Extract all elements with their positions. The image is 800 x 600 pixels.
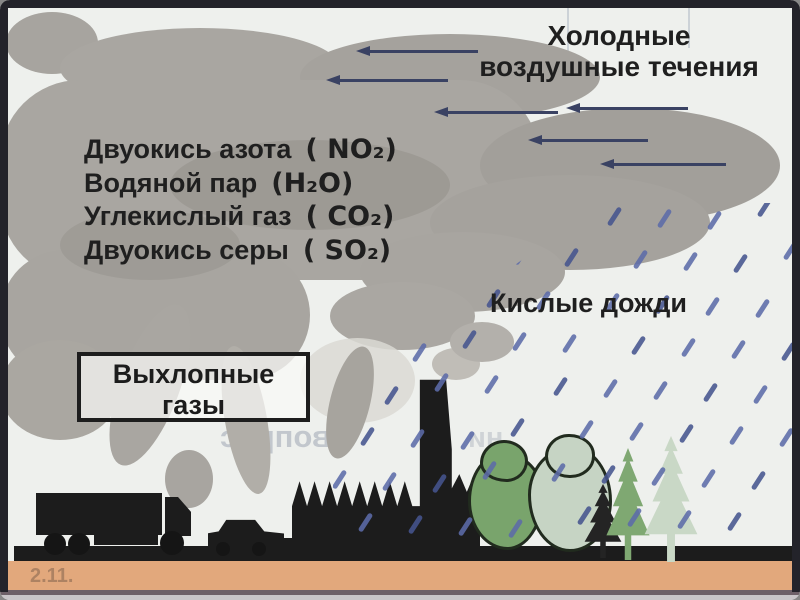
rain-dash xyxy=(657,208,673,228)
bottom-gray-strip xyxy=(0,595,800,600)
acid-rain-diagram: копи вопрос ни Холодные воздушные течени… xyxy=(0,0,800,600)
pollutant-name: Углекислый газ xyxy=(84,201,292,232)
rain-dash xyxy=(653,380,669,400)
rain-dash xyxy=(701,468,717,488)
cold-current-arrow xyxy=(336,79,448,82)
rain-dash xyxy=(601,464,617,484)
rain-dash xyxy=(360,426,376,446)
rain-dash xyxy=(631,335,647,355)
cold-current-arrow xyxy=(576,107,688,110)
rain-dash xyxy=(358,512,374,532)
bleed-text-bottom: 2.11. xyxy=(30,565,73,588)
cold-currents-line1: Холодные xyxy=(464,20,774,51)
rain-dash xyxy=(707,210,723,230)
rain-dash xyxy=(462,329,478,349)
rain-dash xyxy=(733,253,749,273)
rain-dash xyxy=(579,419,595,439)
rain-dash xyxy=(607,206,623,226)
pollutant-formula: ( SO₂) xyxy=(303,235,391,266)
rain-dash xyxy=(382,471,398,491)
cold-current-arrow xyxy=(610,163,726,166)
rain-dash xyxy=(681,337,697,357)
pollutant-name: Двуокись азота xyxy=(84,134,291,165)
rain-dash xyxy=(458,516,474,536)
frame-left xyxy=(0,0,8,592)
cold-currents-label: Холодные воздушные течения xyxy=(464,20,774,82)
rain-dash xyxy=(384,385,400,405)
rain-dash xyxy=(510,417,526,437)
rain-dash xyxy=(410,428,426,448)
rain-dash xyxy=(679,423,695,443)
rain-dash xyxy=(677,509,693,529)
rain-dash xyxy=(651,466,667,486)
rain-dash xyxy=(577,505,593,525)
pollutants-list: Двуокись азота ( NO₂) Водяной пар (H₂O) … xyxy=(84,134,397,268)
cold-currents-line2: воздушные течения xyxy=(464,51,774,82)
bottom-orange-strip: 2.11. xyxy=(8,561,792,591)
rain-dash xyxy=(508,518,524,538)
pollutant-name: Двуокись серы xyxy=(84,235,289,266)
exhaust-line2: газы xyxy=(81,390,306,421)
frame-right xyxy=(792,0,800,592)
rain-dash xyxy=(434,372,450,392)
exhaust-line1: Выхлопные xyxy=(81,359,306,390)
rain-dash xyxy=(512,331,528,351)
rain-dash xyxy=(753,384,769,404)
rain-dash xyxy=(755,298,771,318)
rain-dash xyxy=(757,203,773,218)
rain-dash xyxy=(627,507,643,527)
rain-dash xyxy=(729,425,745,445)
rain-dash xyxy=(553,376,569,396)
rain-dash xyxy=(564,247,580,267)
rain-dash xyxy=(629,421,645,441)
rain-dash xyxy=(408,514,424,534)
rain-dash xyxy=(482,460,498,480)
rain-dash xyxy=(460,430,476,450)
frame-top xyxy=(0,0,800,8)
pollutant-row: Углекислый газ ( CO₂) xyxy=(84,201,397,235)
rain-dash xyxy=(484,374,500,394)
rain-dash xyxy=(683,251,699,271)
rain-dash xyxy=(333,469,347,489)
pollutant-row: Двуокись серы ( SO₂) xyxy=(84,235,397,269)
rain-dash xyxy=(633,249,649,269)
rain-dash xyxy=(562,333,578,353)
cold-current-arrow xyxy=(366,50,478,53)
pollutant-formula: (H₂O) xyxy=(271,168,353,199)
truck-skirt xyxy=(94,535,158,545)
truck-trailer xyxy=(36,493,162,535)
rain-dash xyxy=(705,296,721,316)
pollutant-row: Двуокись азота ( NO₂) xyxy=(84,134,397,168)
rain-dash xyxy=(703,382,719,402)
acid-rain-label: Кислые дожди xyxy=(490,288,687,319)
rain-dash xyxy=(751,470,767,490)
pollutant-formula: ( CO₂) xyxy=(306,201,395,232)
rain-dash xyxy=(727,511,743,531)
rain-dash xyxy=(432,473,448,493)
pollutant-name: Водяной пар xyxy=(84,168,257,199)
rain-dash xyxy=(731,339,747,359)
rain-dash xyxy=(603,378,619,398)
pollutant-row: Водяной пар (H₂O) xyxy=(84,168,397,202)
cold-current-arrow xyxy=(444,111,558,114)
cold-current-arrow xyxy=(538,139,648,142)
exhaust-gases-box: Выхлопные газы xyxy=(77,352,310,422)
pollutant-formula: ( NO₂) xyxy=(305,134,396,165)
rain-dash xyxy=(551,462,567,482)
